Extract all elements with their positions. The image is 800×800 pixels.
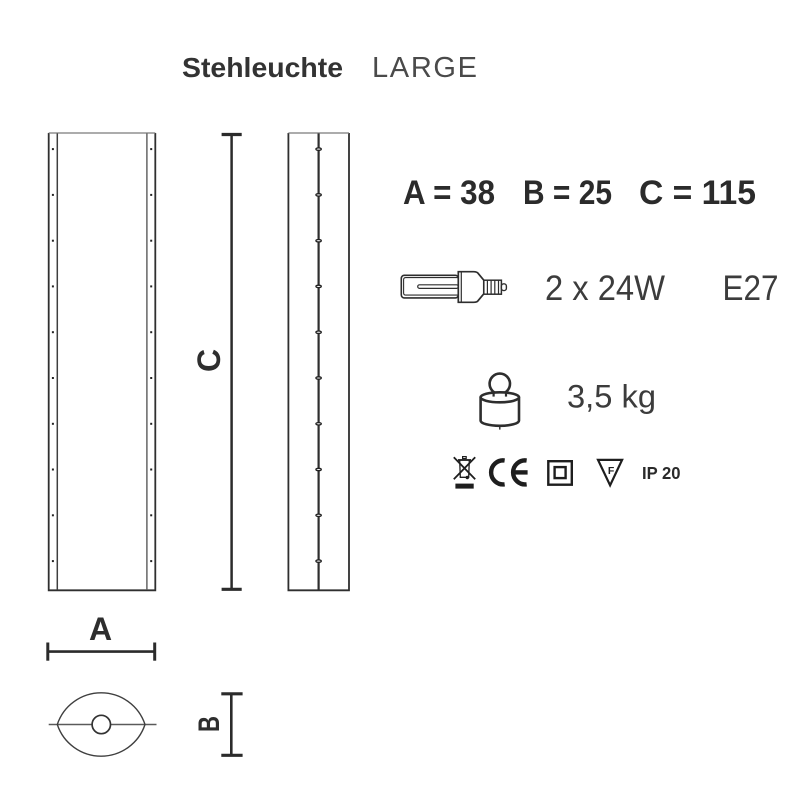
svg-text:F: F — [608, 465, 615, 477]
svg-text:LARGE: LARGE — [372, 52, 477, 84]
svg-text:3,5 kg: 3,5 kg — [567, 379, 656, 415]
svg-text:C: C — [191, 349, 227, 372]
svg-text:E27: E27 — [723, 269, 779, 308]
svg-text:B: B — [193, 716, 226, 732]
svg-text:C = 115: C = 115 — [639, 174, 756, 212]
svg-text:Stehleuchte: Stehleuchte — [182, 52, 343, 83]
svg-text:IP 20: IP 20 — [642, 463, 681, 483]
svg-text:A: A — [89, 611, 112, 647]
svg-text:2 x 24W: 2 x 24W — [545, 269, 665, 308]
svg-text:B = 25: B = 25 — [523, 174, 612, 212]
svg-text:A = 38: A = 38 — [403, 174, 495, 212]
